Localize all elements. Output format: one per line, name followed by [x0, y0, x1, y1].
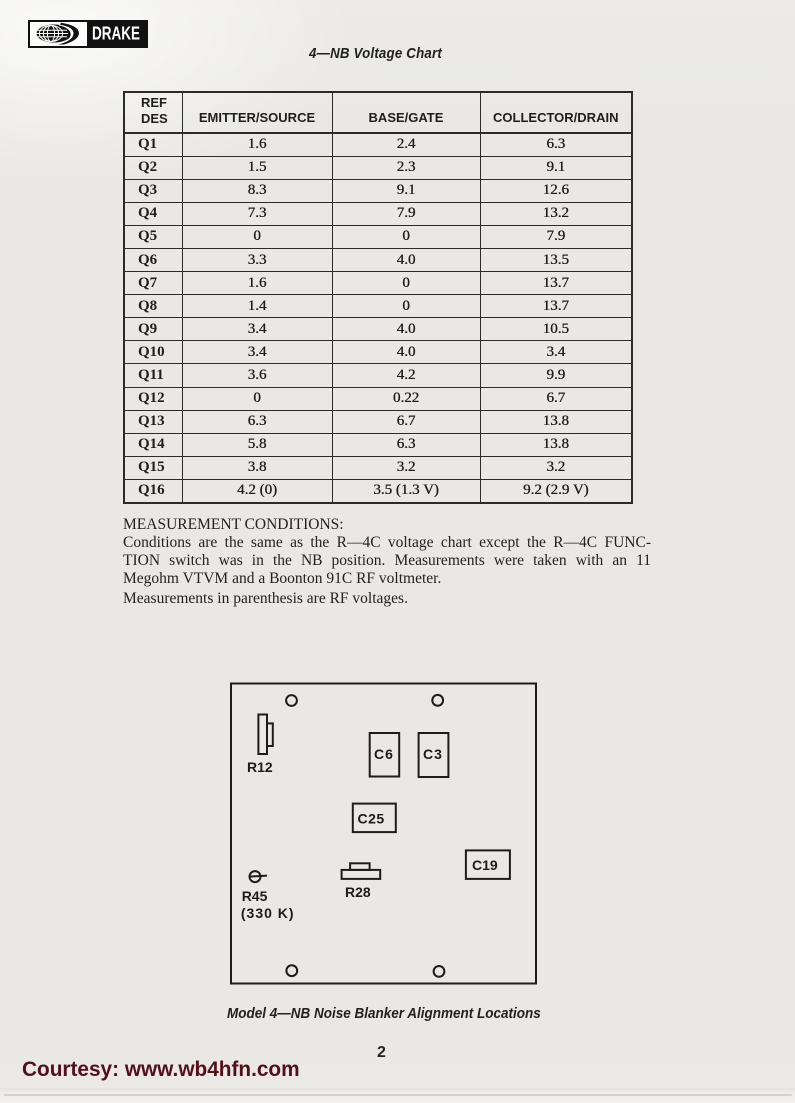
svg-text:R12: R12 [247, 759, 273, 775]
svg-text:R28: R28 [345, 884, 371, 900]
svg-text:(330 K): (330 K) [241, 905, 295, 921]
svg-text:R45: R45 [242, 888, 268, 904]
svg-text:C3: C3 [423, 746, 443, 762]
svg-text:C6: C6 [374, 746, 394, 762]
svg-text:C19: C19 [472, 857, 498, 873]
svg-text:C25: C25 [358, 811, 385, 827]
svg-text:DRAKE: DRAKE [92, 23, 140, 44]
